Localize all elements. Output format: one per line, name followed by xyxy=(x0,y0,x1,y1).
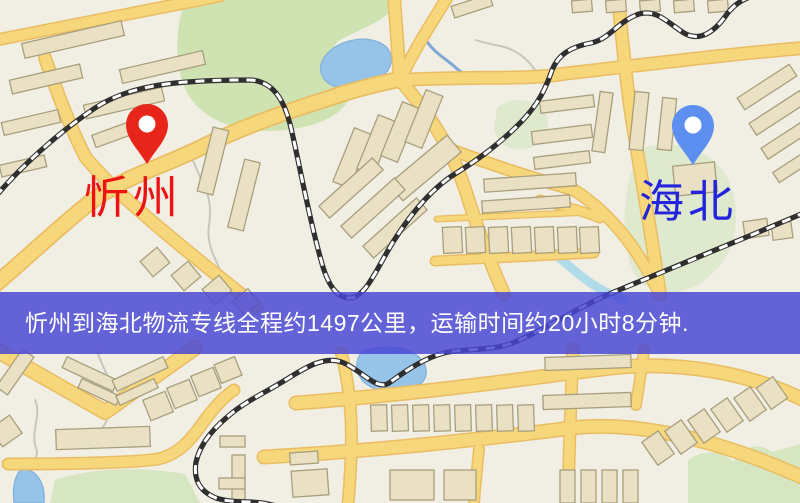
origin-city-label: 忻州 xyxy=(84,176,182,221)
logistics-route-map: 忻州 海北 忻州到海北物流专线全程约1497公里，运输时间约20小时8分钟. xyxy=(0,0,800,503)
map-canvas xyxy=(0,0,800,503)
route-info-banner: 忻州到海北物流专线全程约1497公里，运输时间约20小时8分钟. xyxy=(0,292,800,354)
destination-city-label: 海北 xyxy=(639,180,737,225)
route-info-text: 忻州到海北物流专线全程约1497公里，运输时间约20小时8分钟. xyxy=(0,292,800,354)
origin-pin-icon xyxy=(126,104,168,164)
